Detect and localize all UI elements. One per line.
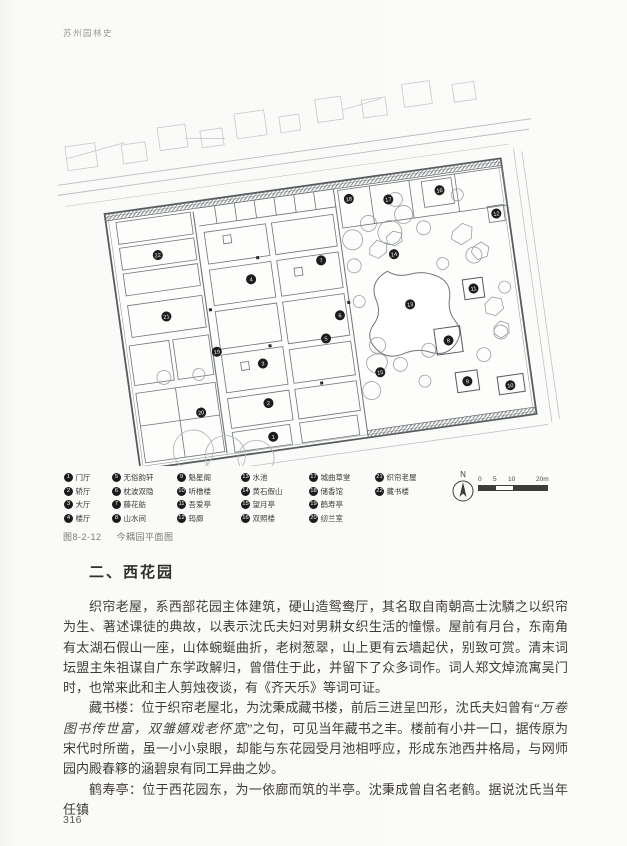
legend-item-label: 藏书楼: [387, 487, 410, 496]
legend-item: 12筠廊: [177, 512, 239, 526]
scale-label-5: 5: [493, 476, 497, 483]
legend-item-label: 藤花舫: [124, 500, 147, 509]
legend-item-label: 大厅: [76, 500, 91, 509]
svg-text:11: 11: [470, 286, 476, 293]
legend-item: 4楼厅: [64, 512, 110, 526]
svg-text:18: 18: [346, 197, 353, 204]
legend-item: 15望月亭: [241, 498, 307, 512]
legend-item-number: 5: [112, 473, 121, 482]
svg-text:20: 20: [198, 410, 205, 417]
figure-caption-title: 今耦园平面图: [117, 532, 174, 542]
legend-item: 6枕波双隐: [112, 485, 175, 499]
garden-plan-figure: 12345678910111213141516171819202122: [58, 56, 570, 466]
legend-item: 2轿厅: [64, 485, 110, 499]
svg-text:22: 22: [154, 253, 161, 260]
figure-caption: 图8-2-12 今耦园平面图: [63, 530, 174, 543]
legend-item: 11吾爱亭: [177, 498, 239, 512]
legend-item-label: 听橹楼: [189, 487, 212, 496]
plan-legend: 1门厅2轿厅3大厅4楼厅5无俗韵轩6枕波双隐7藤花舫8山水间9魁星阁10听橹楼1…: [64, 471, 433, 525]
legend-item-label: 山水间: [124, 514, 147, 523]
legend-item: 8山水间: [112, 512, 175, 526]
legend-item: 14黄石假山: [241, 485, 307, 499]
paragraph-zhilian-laowu: 织帘老屋，系西部花园主体建筑，硬山造鸳鸯厅，其名取自南朝高士沈驎之以织帘为生、著…: [63, 597, 568, 698]
legend-item-label: 魁星阁: [189, 473, 212, 482]
legend-item-number: 10: [177, 487, 186, 496]
legend-item-number: 8: [112, 514, 121, 523]
legend-item-label: 望月亭: [253, 500, 276, 509]
legend-item-label: 储香馆: [321, 487, 344, 496]
legend-item-number: 1: [64, 473, 73, 482]
legend-item-number: 16: [241, 514, 250, 523]
legend-item-label: 门厅: [76, 473, 91, 482]
north-arrow-icon: N: [450, 468, 476, 506]
page-number: 316: [63, 814, 82, 826]
legend-item-number: 22: [375, 487, 384, 496]
svg-text:17: 17: [385, 197, 392, 204]
running-header: 苏州园林史: [63, 27, 113, 39]
legend-item-label: 双照楼: [253, 514, 276, 523]
legend-item-number: 6: [112, 487, 121, 496]
garden-plan-drawing: 12345678910111213141516171819202122: [58, 56, 570, 466]
legend-item: 17城曲草堂: [309, 471, 373, 485]
legend-item-label: 水池: [253, 473, 268, 482]
legend-item: 9魁星阁: [177, 471, 239, 485]
legend-item-label: 枕波双隐: [124, 487, 154, 496]
scale-label-0: 0: [478, 476, 482, 483]
paragraph-cangshulou: 藏书楼：位于织帘老屋北，为沈秉成藏书楼，前后三进呈凹形，沈氏夫妇曾有“万卷图书传…: [63, 698, 568, 779]
legend-item-number: 3: [64, 500, 73, 509]
scale-seg-2: [496, 486, 513, 490]
legend-item: 19鹤寿亭: [309, 498, 373, 512]
legend-item: 3大厅: [64, 498, 110, 512]
paragraph-heshouting: 鹤寿亭：位于西花园东，为一依廊而筑的半亭。沈秉成曾自名老鹤。据说沈氏当年任镇: [63, 780, 568, 821]
legend-item: 5无俗韵轩: [112, 471, 175, 485]
map-tools: N 0 5 10 20m: [450, 468, 570, 508]
paragraph-cangshulou-pre: 藏书楼：位于织帘老屋北，为沈秉成藏书楼，前后三进呈凹形，沈氏夫妇曾有“: [89, 700, 540, 715]
legend-item-number: 7: [112, 500, 121, 509]
legend-item: 13水池: [241, 471, 307, 485]
legend-item-label: 轿厅: [76, 487, 91, 496]
legend-item: 10听橹楼: [177, 485, 239, 499]
svg-text:21: 21: [163, 314, 170, 321]
figure-caption-number: 图8-2-12: [63, 532, 102, 542]
legend-item-label: 鹤寿亭: [321, 500, 344, 509]
scale-labels: 0 5 10 20m: [478, 476, 550, 484]
legend-item-label: 城曲草堂: [321, 473, 351, 482]
legend-item-number: 12: [177, 514, 186, 523]
svg-text:19: 19: [214, 349, 221, 356]
legend-item-number: 14: [241, 487, 250, 496]
svg-text:N: N: [460, 470, 466, 479]
legend-item-label: 织帘老屋: [387, 473, 417, 482]
legend-item: 7藤花舫: [112, 498, 175, 512]
legend-item-number: 13: [241, 473, 250, 482]
svg-text:13: 13: [407, 302, 414, 309]
legend-item: 22藏书楼: [375, 485, 433, 499]
legend-item-number: 11: [177, 500, 186, 509]
svg-text:10: 10: [507, 383, 514, 390]
legend-item-number: 4: [64, 514, 73, 523]
legend-item: 21织帘老屋: [375, 471, 433, 485]
scale-seg-1: [479, 486, 496, 490]
legend-item-number: 9: [177, 473, 186, 482]
legend-item-number: 17: [309, 473, 318, 482]
legend-item-number: 18: [309, 487, 318, 496]
legend-item-label: 筠廊: [189, 514, 204, 523]
legend-item: 20纫兰室: [309, 512, 373, 526]
section-heading: 二、西花园: [89, 561, 174, 582]
legend-item-number: 2: [64, 487, 73, 496]
svg-text:16: 16: [436, 188, 443, 195]
legend-item: 16双照楼: [241, 512, 307, 526]
legend-item: 1门厅: [64, 471, 110, 485]
body-text: 织帘老屋，系西部花园主体建筑，硬山造鸳鸯厅，其名取自南朝高士沈驎之以织帘为生、著…: [63, 597, 568, 820]
scale-label-20: 20m: [536, 476, 549, 483]
svg-text:15: 15: [377, 370, 384, 377]
scale-bar-segments: [478, 485, 548, 491]
legend-item-number: 20: [309, 514, 318, 523]
legend-item-label: 无俗韵轩: [124, 473, 154, 482]
scale-label-10: 10: [508, 476, 515, 483]
svg-text:14: 14: [391, 252, 398, 259]
legend-item-label: 黄石假山: [253, 487, 283, 496]
legend-item-number: 21: [375, 473, 384, 482]
legend-item-label: 纫兰室: [321, 514, 344, 523]
legend-item-label: 吾爱亭: [189, 500, 212, 509]
legend-item: 18储香馆: [309, 485, 373, 499]
scale-bar: 0 5 10 20m: [478, 476, 550, 491]
legend-item-label: 楼厅: [76, 514, 91, 523]
scale-seg-3: [513, 486, 547, 490]
legend-item-number: 15: [241, 500, 250, 509]
svg-text:12: 12: [493, 211, 500, 218]
legend-item-number: 19: [309, 500, 318, 509]
